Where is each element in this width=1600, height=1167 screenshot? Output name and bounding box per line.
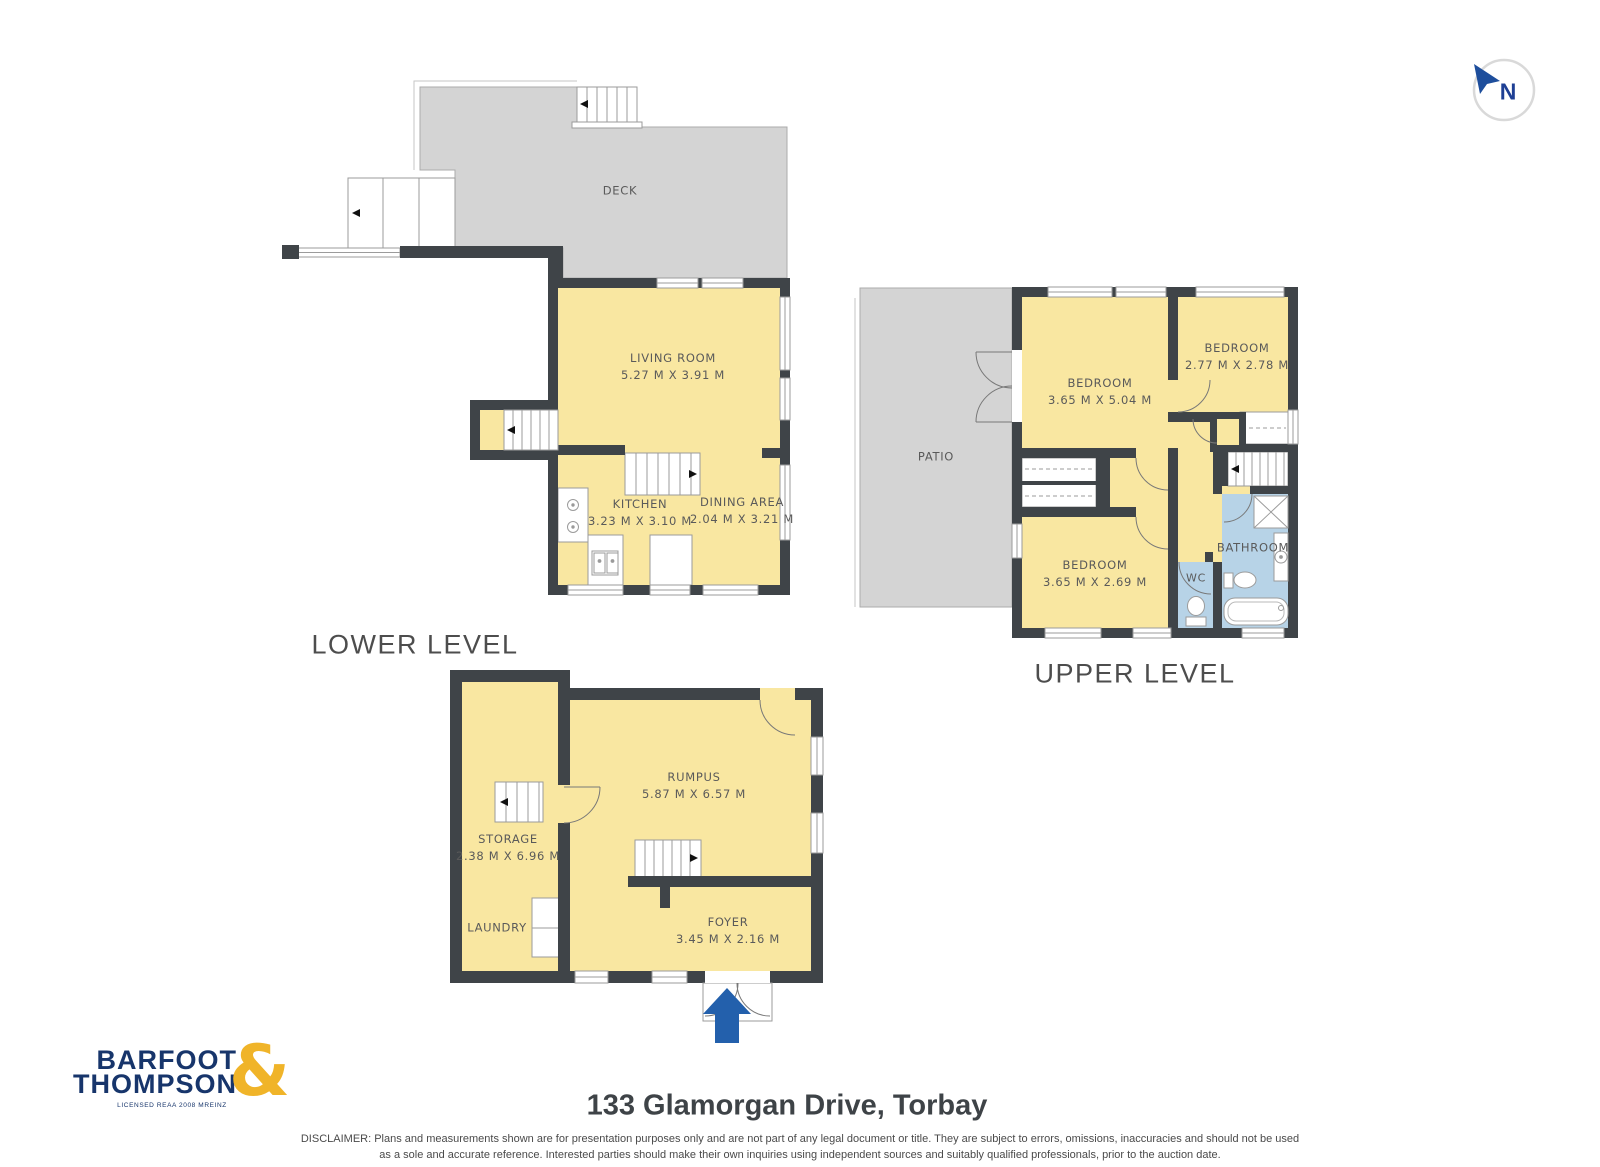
room-name: BEDROOM — [1048, 375, 1152, 392]
room-name: PATIO — [918, 449, 954, 466]
room-dims: 3.45 M X 2.16 M — [676, 931, 780, 948]
bedroom2-wardrobe — [1240, 412, 1288, 444]
floorplan-page: DECK LIVING ROOM 5.27 M X 3.91 M KITCHEN… — [0, 0, 1600, 1167]
shower — [1254, 496, 1288, 528]
wc-toilet — [1186, 597, 1206, 627]
room-label-patio: PATIO — [918, 449, 954, 466]
bedroom3-wardrobes — [1022, 458, 1096, 507]
logo-ampersand: & — [229, 1036, 290, 1106]
room-name: FOYER — [676, 914, 780, 931]
room-dims: 2.04 M X 3.21 M — [690, 511, 794, 528]
room-name: LIVING ROOM — [621, 350, 725, 367]
room-name: BEDROOM — [1185, 340, 1289, 357]
room-name: LAUNDRY — [467, 920, 527, 937]
room-label-foyer: FOYER 3.45 M X 2.16 M — [676, 914, 780, 948]
kitchen-sink — [592, 551, 618, 575]
hall-closet — [1217, 419, 1239, 445]
room-name: DECK — [603, 183, 638, 200]
room-label-bedroom1: BEDROOM 3.65 M X 5.04 M — [1048, 375, 1152, 409]
compass-north-label: N — [1500, 79, 1517, 106]
room-label-bedroom2: BEDROOM 2.77 M X 2.78 M — [1185, 340, 1289, 374]
laundry-appliances — [532, 898, 560, 957]
room-label-living: LIVING ROOM 5.27 M X 3.91 M — [621, 350, 725, 384]
room-label-storage: STORAGE 2.38 M X 6.96 M — [456, 831, 560, 865]
room-label-deck: DECK — [603, 183, 638, 200]
disclaimer-line1: DISCLAIMER: Plans and measurements shown… — [0, 1133, 1600, 1145]
room-dims: 5.27 M X 3.91 M — [621, 367, 725, 384]
room-name: BEDROOM — [1043, 557, 1147, 574]
room-dims: 3.65 M X 5.04 M — [1048, 392, 1152, 409]
bathtub — [1224, 598, 1288, 625]
kitchen-stairs — [625, 453, 700, 495]
room-label-bedroom3: BEDROOM 3.65 M X 2.69 M — [1043, 557, 1147, 591]
room-dims: 3.23 M X 3.10 M — [588, 513, 692, 530]
room-label-rumpus: RUMPUS 5.87 M X 6.57 M — [642, 769, 746, 803]
bathroom-toilet — [1224, 572, 1256, 588]
floorplan-graphic — [0, 0, 1600, 1167]
room-label-laundry: LAUNDRY — [467, 920, 527, 937]
room-label-bathroom: BATHROOM — [1217, 540, 1289, 557]
room-name: DINING AREA — [690, 494, 794, 511]
upper-level-title: UPPER LEVEL — [1034, 659, 1235, 690]
patio-area — [860, 288, 1012, 607]
disclaimer-line2: as a sole and accurate reference. Intere… — [0, 1149, 1600, 1161]
room-dims: 2.38 M X 6.96 M — [456, 848, 560, 865]
room-name: BATHROOM — [1217, 540, 1289, 557]
deck-stairs — [572, 87, 642, 128]
room-label-dining: DINING AREA 2.04 M X 3.21 M — [690, 494, 794, 528]
room-name: KITCHEN — [588, 496, 692, 513]
room-name: WC — [1186, 570, 1206, 587]
logo-wordmark: BARFOOT THOMPSON — [63, 1048, 237, 1096]
room-dims: 3.65 M X 2.69 M — [1043, 574, 1147, 591]
room-label-wc: WC — [1186, 570, 1206, 587]
room-dims: 2.77 M X 2.78 M — [1185, 357, 1289, 374]
property-address: 133 Glamorgan Drive, Torbay — [587, 1090, 988, 1123]
logo-line2: THOMPSON — [63, 1072, 237, 1096]
room-label-kitchen: KITCHEN 3.23 M X 3.10 M — [588, 496, 692, 530]
deck-landing — [348, 178, 455, 248]
room-dims: 5.87 M X 6.57 M — [642, 786, 746, 803]
room-name: STORAGE — [456, 831, 560, 848]
lower-level-title: LOWER LEVEL — [311, 630, 518, 661]
room-name: RUMPUS — [642, 769, 746, 786]
barfoot-thompson-logo: BARFOOT THOMPSON & LICENSED REAA 2008 MR… — [63, 1048, 267, 1109]
